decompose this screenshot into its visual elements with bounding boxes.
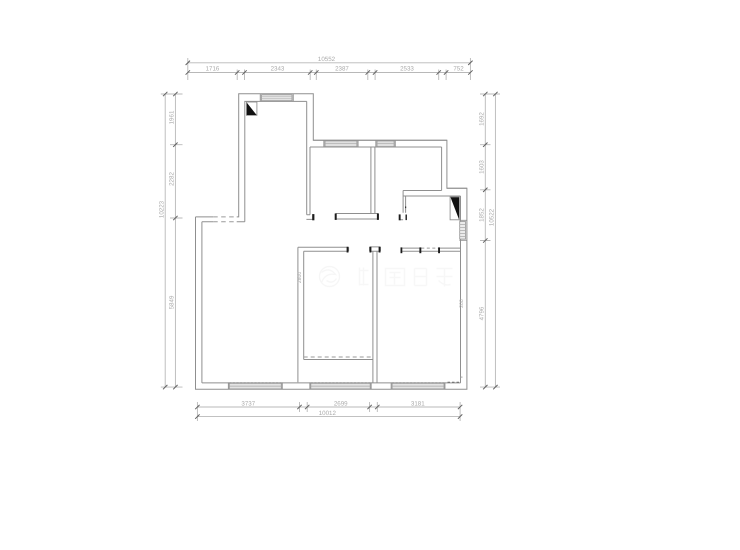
svg-text:2533: 2533 xyxy=(400,66,414,73)
svg-text:2387: 2387 xyxy=(335,66,349,73)
svg-text:2699: 2699 xyxy=(334,400,348,407)
svg-text:2282: 2282 xyxy=(168,172,175,186)
svg-text:1692: 1692 xyxy=(479,112,486,126)
svg-text:10012: 10012 xyxy=(319,410,337,417)
svg-text:10522: 10522 xyxy=(489,208,496,226)
svg-text:752: 752 xyxy=(453,66,464,73)
svg-text:3737: 3737 xyxy=(241,400,255,407)
svg-text:5849: 5849 xyxy=(168,295,175,309)
svg-text:2800: 2800 xyxy=(297,272,303,284)
svg-text:10223: 10223 xyxy=(158,200,165,218)
svg-text:4796: 4796 xyxy=(479,306,486,320)
svg-text:1961: 1961 xyxy=(168,110,175,124)
svg-text:3181: 3181 xyxy=(411,400,425,407)
svg-text:1852: 1852 xyxy=(479,208,486,222)
svg-text:10552: 10552 xyxy=(318,56,336,63)
svg-text:1603: 1603 xyxy=(479,160,486,174)
svg-text:1716: 1716 xyxy=(206,66,220,73)
svg-text:200: 200 xyxy=(459,299,465,308)
svg-text:2343: 2343 xyxy=(271,66,285,73)
